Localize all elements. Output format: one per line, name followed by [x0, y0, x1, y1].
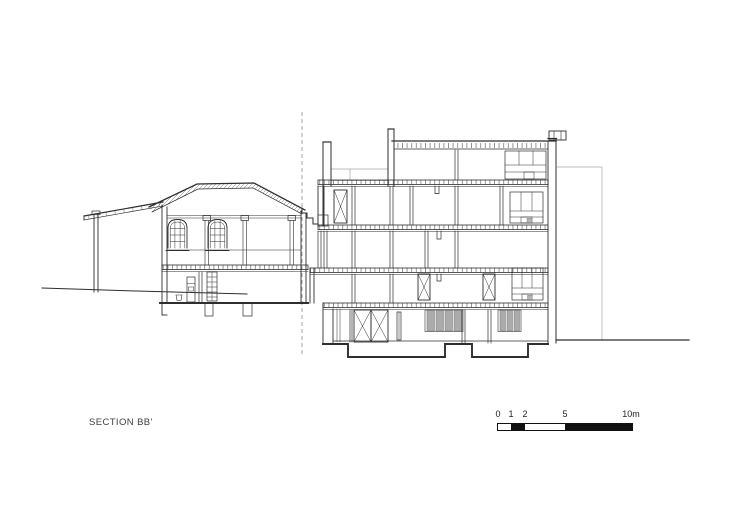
foundation-pier: [205, 303, 213, 316]
drawing-sheet: SECTION BB' 0 1 2 5 10m: [0, 0, 732, 516]
shaded-window-group: [425, 310, 463, 332]
door-leaf: [483, 274, 495, 300]
annex-left-wall: [162, 205, 167, 315]
narrow-panel: [397, 312, 401, 340]
penthouse-parapet: [388, 129, 394, 186]
main-building: [310, 129, 566, 357]
door-jamb: [199, 272, 202, 303]
ground-level: [323, 303, 548, 344]
third-floor: [318, 231, 458, 268]
porch-canopy: [84, 202, 163, 220]
fourth-floor: [318, 186, 543, 226]
arched-window: [206, 220, 229, 251]
annex-building: [84, 183, 308, 316]
annex-roof: [149, 183, 305, 214]
building-section-drawing: [0, 0, 732, 516]
floor-slab: [318, 180, 548, 187]
door-leaf: [334, 190, 347, 223]
toilet-fixture: [176, 295, 182, 301]
annex-floor-slab: [162, 265, 308, 272]
shelf-ladder: [207, 272, 217, 301]
interior-post: [288, 216, 296, 266]
background-building-outline: [331, 167, 602, 340]
foundation: [323, 344, 548, 357]
second-floor: [310, 268, 543, 303]
porch-column: [94, 215, 98, 292]
door-leaf: [354, 310, 371, 342]
shaded-window-group: [498, 310, 521, 332]
ground-line-left: [42, 288, 247, 294]
right-exterior-wall: [548, 139, 557, 344]
tall-cabinet: [187, 277, 195, 302]
floor-slab: [323, 303, 548, 310]
door-leaf: [418, 274, 430, 300]
section-title: SECTION BB': [89, 417, 153, 428]
roof-slab: [392, 141, 556, 149]
penthouse-interior: [455, 150, 546, 180]
foundation-pier: [243, 303, 252, 316]
arched-window: [166, 220, 189, 251]
door-leaf: [371, 310, 388, 342]
wall-cabinet: [510, 192, 543, 223]
interior-post: [241, 216, 249, 266]
floor-slab: [318, 225, 548, 232]
